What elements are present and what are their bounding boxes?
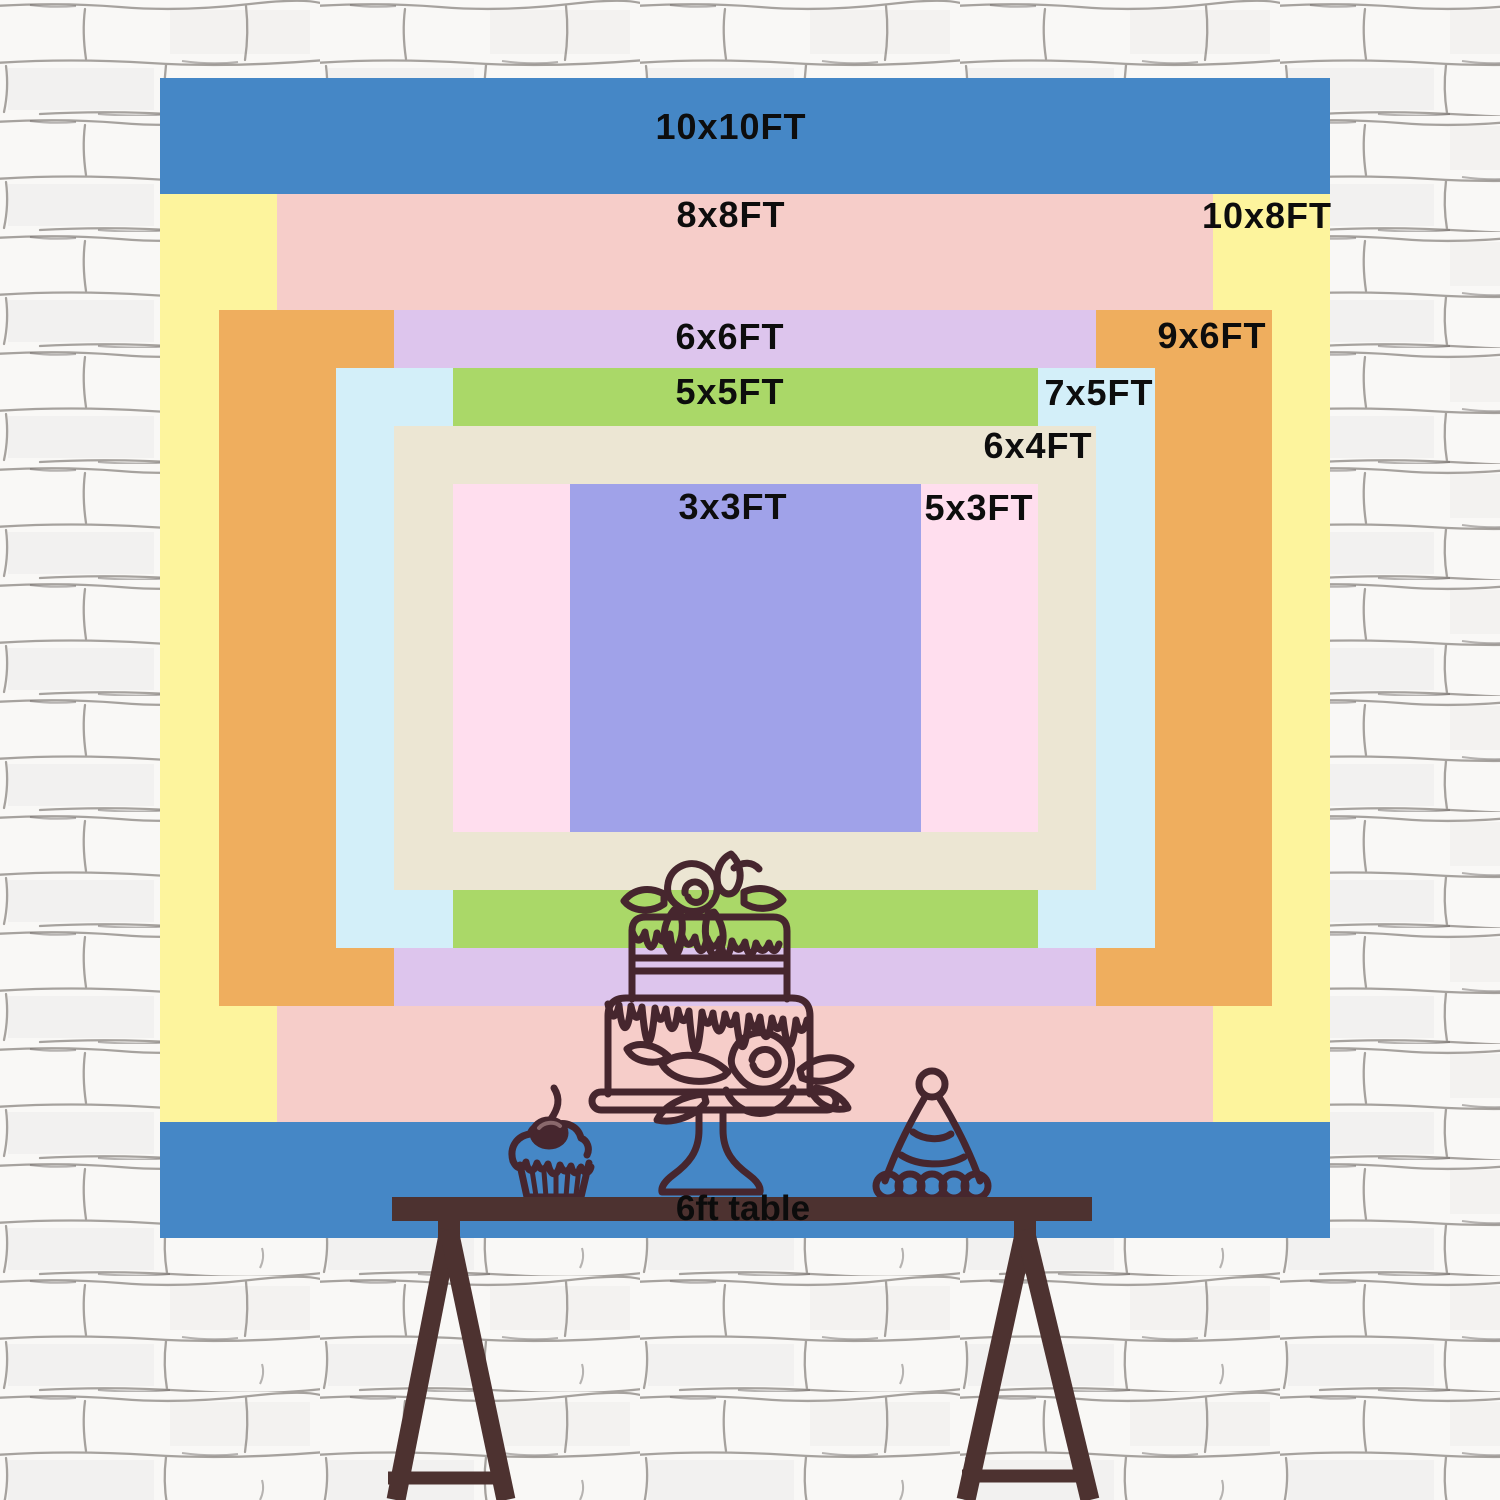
size-label-5x3ft: 5x3FT xyxy=(924,487,1033,529)
size-label-6x4ft: 6x4FT xyxy=(983,425,1092,467)
size-label-9x6ft: 9x6FT xyxy=(1157,315,1266,357)
size-label-5x5ft: 5x5FT xyxy=(675,371,784,413)
size-label-6x6ft: 6x6FT xyxy=(675,316,784,358)
size-label-10x10ft: 10x10FT xyxy=(655,106,806,148)
size-label-10x8ft: 10x8FT xyxy=(1202,195,1332,237)
backdrop-size-chart: 10x10FT10x8FT8x8FT9x6FT6x6FT7x5FT5x5FT6x… xyxy=(0,0,1500,1500)
size-label-8x8ft: 8x8FT xyxy=(676,194,785,236)
size-rect-3x3ft xyxy=(570,484,921,832)
size-label-7x5ft: 7x5FT xyxy=(1044,372,1153,414)
table-size-label: 6ft table xyxy=(676,1189,810,1229)
size-label-3x3ft: 3x3FT xyxy=(678,486,787,528)
backdrop-banner: 10x10FT10x8FT8x8FT9x6FT6x6FT7x5FT5x5FT6x… xyxy=(160,78,1330,1238)
